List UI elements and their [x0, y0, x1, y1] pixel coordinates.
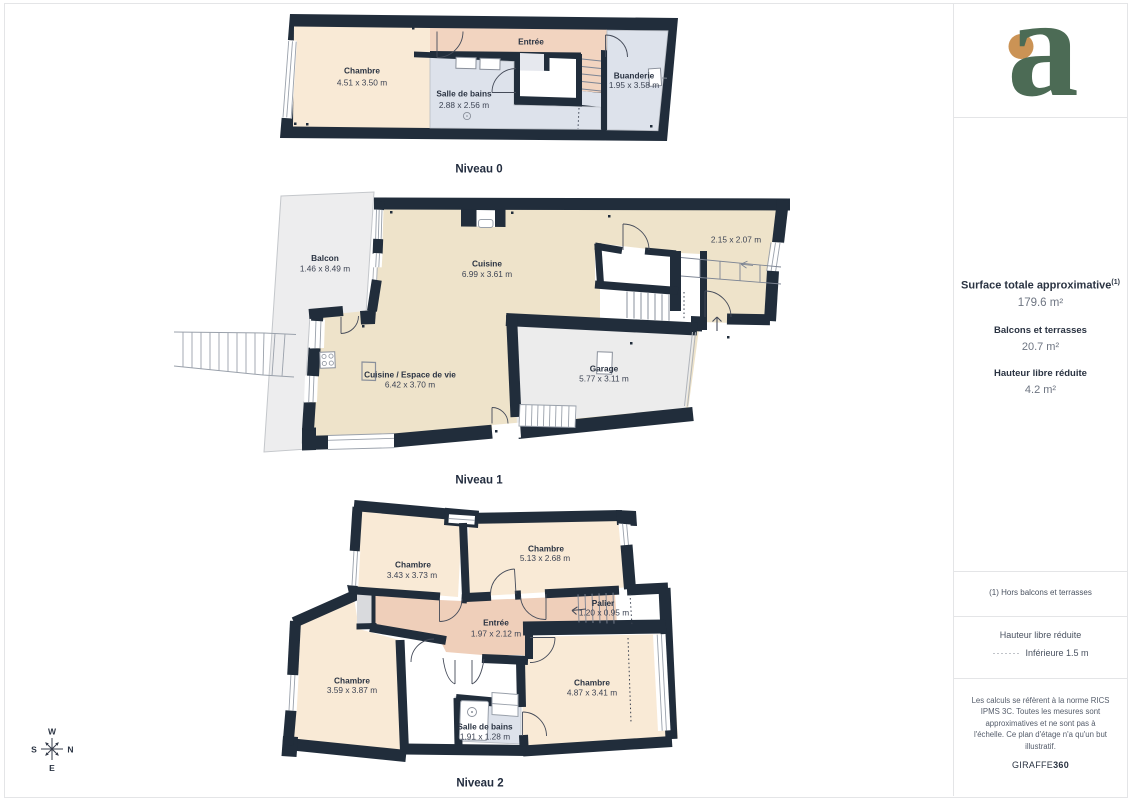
- svg-text:Cuisine: Cuisine: [472, 259, 502, 269]
- svg-text:E: E: [49, 763, 55, 773]
- svg-text:1.95 x 3.58 m: 1.95 x 3.58 m: [609, 80, 659, 90]
- svg-text:Entrée: Entrée: [483, 618, 509, 628]
- svg-text:W: W: [48, 727, 57, 737]
- svg-text:Chambre: Chambre: [574, 678, 610, 688]
- svg-text:6.99 x 3.61 m: 6.99 x 3.61 m: [462, 269, 512, 279]
- svg-text:a: a: [1007, 18, 1079, 103]
- svg-text:4.51 x 3.50 m: 4.51 x 3.50 m: [337, 78, 387, 88]
- svg-text:Buanderie: Buanderie: [614, 71, 655, 81]
- svg-text:3.43 x 3.73 m: 3.43 x 3.73 m: [387, 570, 437, 580]
- svg-text:Salle de bains: Salle de bains: [436, 89, 492, 99]
- svg-text:Chambre: Chambre: [395, 560, 431, 570]
- svg-text:Cuisine / Espace de vie: Cuisine / Espace de vie: [364, 370, 456, 380]
- svg-text:Chambre: Chambre: [344, 66, 380, 76]
- svg-text:Palier: Palier: [592, 598, 615, 608]
- svg-text:Balcon: Balcon: [311, 253, 339, 263]
- svg-text:1.97 x 2.12 m: 1.97 x 2.12 m: [471, 629, 521, 639]
- svg-text:Entrée: Entrée: [518, 37, 544, 47]
- svg-text:1.20 x 0.95 m: 1.20 x 0.95 m: [579, 608, 629, 618]
- svg-text:3.59 x 3.87 m: 3.59 x 3.87 m: [327, 685, 377, 695]
- svg-text:2.88 x 2.56 m: 2.88 x 2.56 m: [439, 100, 489, 110]
- svg-text:Chambre: Chambre: [528, 544, 564, 554]
- svg-text:Chambre: Chambre: [334, 676, 370, 686]
- svg-text:Niveau 2: Niveau 2: [456, 778, 503, 790]
- svg-text:2.15 x 2.07 m: 2.15 x 2.07 m: [711, 235, 761, 245]
- svg-text:6.42 x 3.70 m: 6.42 x 3.70 m: [385, 380, 435, 390]
- svg-text:5.13 x 2.68 m: 5.13 x 2.68 m: [520, 553, 570, 563]
- svg-text:5.77 x 3.11 m: 5.77 x 3.11 m: [579, 374, 629, 384]
- svg-text:1.46 x 8.49 m: 1.46 x 8.49 m: [300, 264, 350, 274]
- svg-text:Salle de bains: Salle de bains: [457, 722, 513, 732]
- svg-text:N: N: [67, 745, 73, 755]
- svg-text:Garage: Garage: [590, 364, 619, 374]
- svg-text:Niveau 1: Niveau 1: [455, 475, 503, 487]
- svg-text:4.87 x 3.41 m: 4.87 x 3.41 m: [567, 688, 617, 698]
- svg-text:1.91 x 1.28 m: 1.91 x 1.28 m: [460, 732, 510, 742]
- svg-text:Niveau 0: Niveau 0: [455, 164, 502, 176]
- svg-text:S: S: [31, 745, 37, 755]
